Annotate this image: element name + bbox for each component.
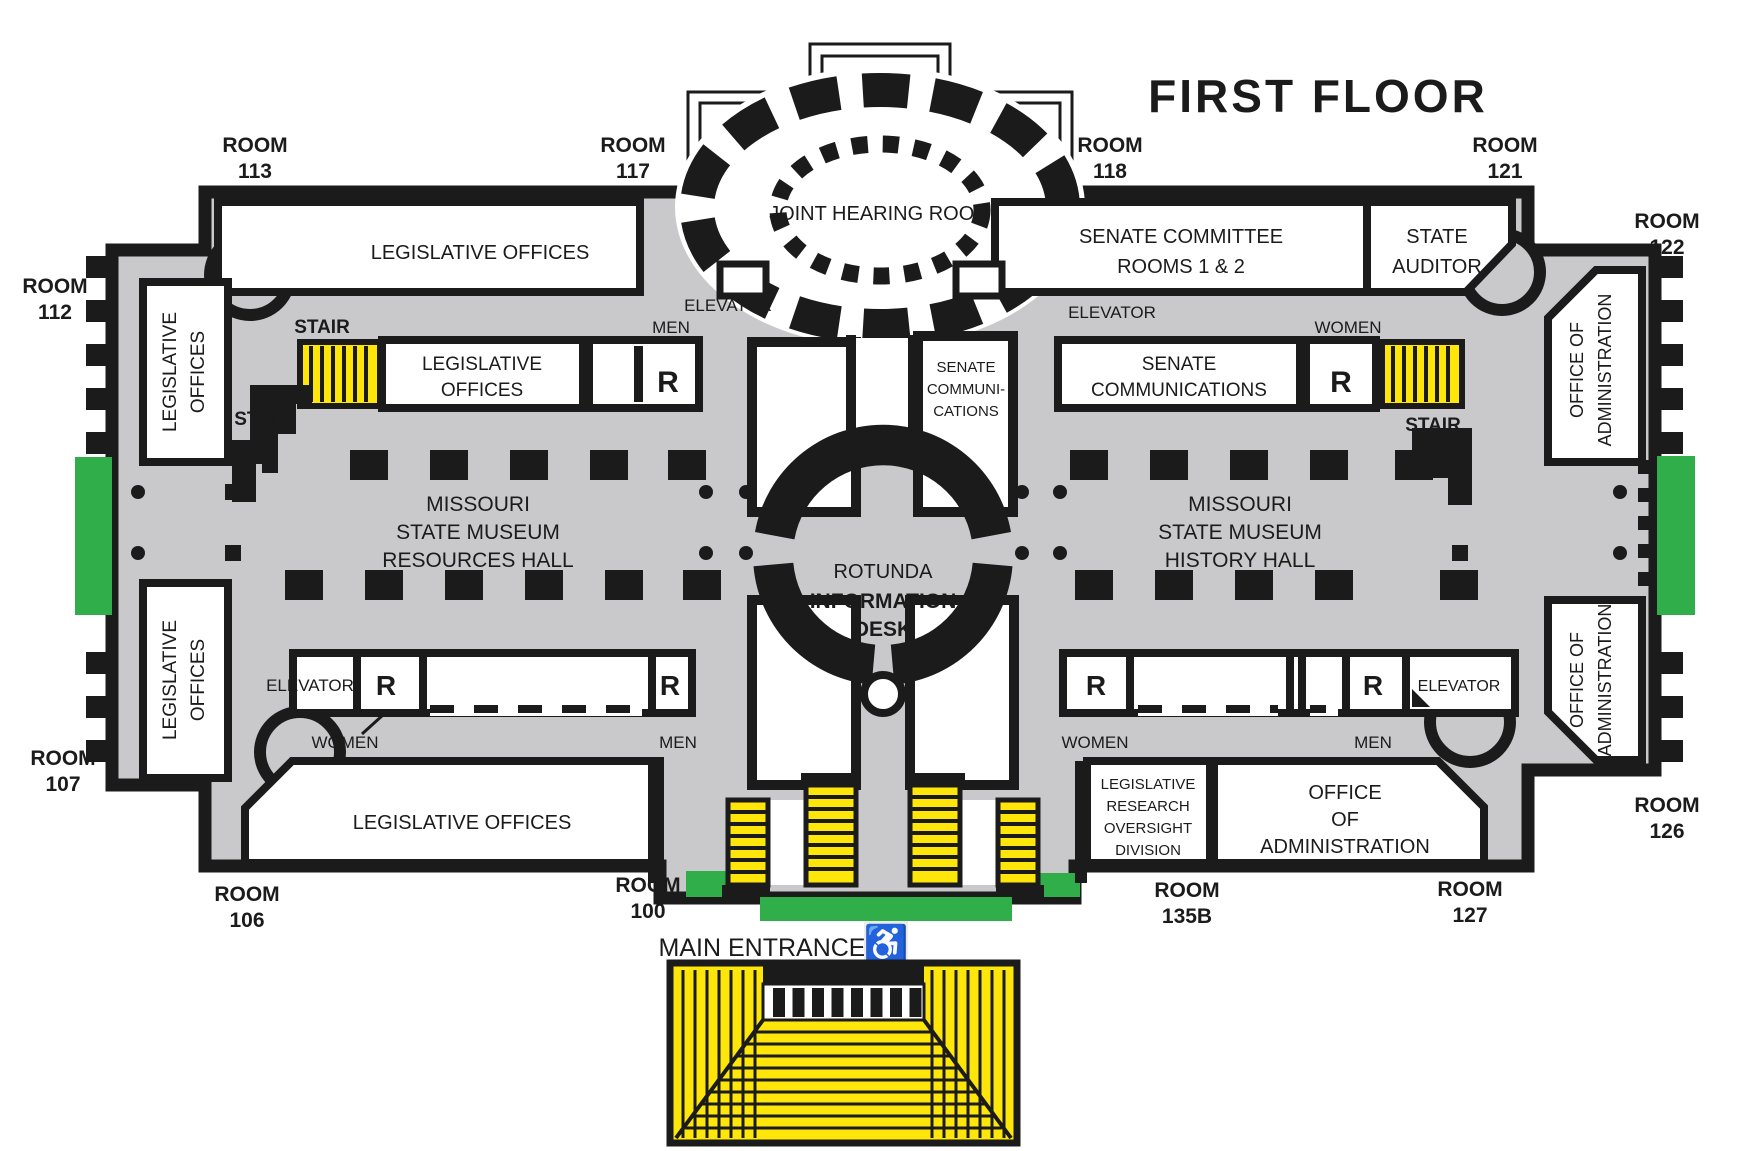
grand-stair-column-dash [851, 988, 863, 1017]
elevator-label-north-left: ELEVATOR [684, 296, 772, 315]
grand-stair-top-band [763, 966, 924, 984]
history-hall-label-1: MISSOURI [1188, 493, 1292, 516]
grand-staircase [670, 963, 1017, 1143]
west-lower-label-2: OFFICES [188, 639, 209, 721]
stair-cap-1 [801, 773, 861, 785]
row-se-divider-5 [1402, 653, 1410, 713]
elevator-label-north-right: ELEVATOR [1068, 303, 1156, 322]
row-se-divider-3 [1298, 653, 1306, 713]
wall-tooth-east [1655, 256, 1683, 278]
north-corridor-wall-right [908, 335, 918, 430]
office-admin-south-label-3: ADMINISTRATION [1260, 836, 1430, 858]
wheelchair-icon: ♿ [864, 923, 909, 964]
stair-cap-2 [905, 773, 965, 785]
senate-communications-label-1: SENATE [1142, 354, 1217, 375]
elevator-shaft-north-left [720, 264, 766, 296]
senate-communi-small-label-2: COMMUNI- [927, 381, 1005, 398]
restroom-r-sw-women: R [376, 670, 396, 701]
women-label-north: WOMEN [1314, 318, 1381, 337]
grand-stair-column-dash [871, 988, 883, 1017]
wall-tooth-east-small [1638, 488, 1654, 502]
senate-communi-small-label-3: CATIONS [933, 403, 999, 420]
men-label-north: MEN [652, 318, 690, 337]
desk-label: DESK [854, 618, 912, 641]
men-label-southeast: MEN [1354, 733, 1392, 752]
wall-tooth-west [86, 344, 114, 366]
room-100-word: ROOM [615, 874, 680, 897]
column-block [350, 450, 388, 480]
vestibule-wall-east [1075, 761, 1087, 883]
restroom-r-sw-men: R [660, 670, 680, 701]
column-block [430, 450, 468, 480]
wall-tooth-west [86, 256, 114, 278]
column-dot [131, 485, 145, 499]
column-dot [1015, 485, 1029, 499]
history-hall-label-2: STATE MUSEUM [1158, 521, 1322, 544]
state-auditor-label-1: STATE [1406, 226, 1467, 248]
wall-tooth-east [1655, 388, 1683, 410]
floor-plan-page: JOINT HEARING ROOM LEGISLATIVE OFFICES S… [0, 0, 1742, 1151]
room-112-word: ROOM [22, 275, 87, 298]
page-title: FIRST FLOOR [1148, 70, 1488, 122]
column-block [525, 570, 563, 600]
room-122-word: ROOM [1634, 210, 1699, 233]
main-entrance-label: MAIN ENTRANCE [659, 934, 866, 962]
west-entrance-green [75, 457, 112, 615]
column-dot [699, 485, 713, 499]
room-legislative-offices-west-lower [143, 583, 228, 778]
column-block [1395, 450, 1433, 480]
room-107-number: 107 [45, 773, 80, 796]
room-126-number: 126 [1649, 820, 1684, 843]
senate-committee-label-2: ROOMS 1 & 2 [1117, 256, 1245, 278]
state-auditor-label-2: AUDITOR [1392, 256, 1482, 278]
vestibule-wall-west [648, 761, 660, 883]
elevator-label-southeast: ELEVATOR [1418, 678, 1501, 695]
restroom-r-upper-right: R [1330, 366, 1352, 399]
lrod-label-2: RESEARCH [1106, 798, 1189, 815]
resources-hall-label-1: MISSOURI [426, 493, 530, 516]
column-block [590, 450, 628, 480]
column-block [1070, 450, 1108, 480]
east-lower-label-1: OFFICE OF [1567, 632, 1587, 728]
stair-landing-west [768, 800, 806, 885]
column-block [1310, 450, 1348, 480]
column-block [605, 570, 643, 600]
restroom-r-upper-left: R [657, 366, 679, 399]
main-entrance-green-bar [760, 897, 1012, 921]
stair-label-upper-left: STAIR [294, 317, 350, 338]
rotunda-label: ROTUNDA [834, 561, 934, 583]
room-126-word: ROOM [1634, 794, 1699, 817]
room-135b-word: ROOM [1154, 879, 1219, 902]
column-small [262, 457, 278, 473]
column-dot [739, 546, 753, 560]
elevator-shaft-north-right [956, 264, 1002, 296]
row-se-divider-1 [1126, 653, 1134, 713]
room-118-word: ROOM [1077, 134, 1142, 157]
resources-hall-label-3: RESOURCES HALL [382, 549, 573, 572]
room-100-number: 100 [630, 900, 665, 923]
column-block [1155, 570, 1193, 600]
history-hall-label-3: HISTORY HALL [1165, 549, 1316, 572]
east-lower-label-2: ADMINISTRATION [1595, 604, 1615, 757]
office-admin-south-label-2: OF [1331, 809, 1359, 831]
senate-communications-label-2: COMMUNICATIONS [1091, 380, 1267, 401]
row-sw-divider-2 [419, 653, 427, 713]
elevator-label-southwest: ELEVATOR [266, 676, 354, 695]
column-dot [739, 485, 753, 499]
grand-stair-column-dash [890, 988, 902, 1017]
column-block [1315, 570, 1353, 600]
row-se-divider-2 [1286, 653, 1294, 713]
room-106-word: ROOM [214, 883, 279, 906]
wall-tooth-west [86, 696, 114, 718]
room-113-word: ROOM [222, 134, 287, 157]
column-block [1075, 570, 1113, 600]
wall-tooth-east [1655, 740, 1683, 762]
joint-hearing-room-label: JOINT HEARING ROOM [769, 203, 991, 225]
column-small [225, 545, 241, 561]
wall-tooth-east [1655, 696, 1683, 718]
wall-tooth-east [1655, 300, 1683, 322]
restroom-r-se-women: R [1086, 670, 1106, 701]
room-106-number: 106 [229, 909, 264, 932]
wall-tooth-east [1655, 344, 1683, 366]
men-label-southwest: MEN [659, 733, 697, 752]
column-small [1452, 484, 1468, 500]
wall-tooth-east-small [1638, 516, 1654, 530]
room-117-word: ROOM [600, 134, 665, 157]
west-upper-label-2: OFFICES [188, 331, 209, 413]
north-corridor [856, 338, 908, 428]
wall-tooth-east [1655, 432, 1683, 454]
grand-stair-column-dash [773, 988, 785, 1017]
information-label: INFORMATION [810, 590, 957, 613]
column-block [668, 450, 706, 480]
room-122-number: 122 [1649, 236, 1684, 259]
grand-stair-column-dash [793, 988, 805, 1017]
stair-cap-3 [722, 885, 770, 897]
grand-stair-column-dash [910, 988, 922, 1017]
column-block [365, 570, 403, 600]
wall-tooth-west [86, 652, 114, 674]
row-se-divider-4 [1342, 653, 1350, 713]
restroom-men-upper [589, 340, 699, 408]
grand-stair-column-dash [812, 988, 824, 1017]
legislative-offices-south-label: LEGISLATIVE OFFICES [353, 812, 572, 834]
wall-tooth-west [86, 388, 114, 410]
column-dot [1053, 546, 1067, 560]
stair-label-west: STAIR [234, 409, 290, 430]
room-112-number: 112 [38, 301, 72, 324]
east-upper-label-1: OFFICE OF [1567, 322, 1587, 418]
lrod-label-3: OVERSIGHT [1104, 820, 1192, 837]
column-small [225, 484, 241, 500]
column-dot [1613, 485, 1627, 499]
east-entrance-green [1657, 456, 1695, 615]
column-block [285, 570, 323, 600]
east-upper-label-2: ADMINISTRATION [1595, 294, 1615, 447]
women-label-southeast: WOMEN [1061, 733, 1128, 752]
office-admin-south-label-1: OFFICE [1308, 782, 1381, 804]
room-135b-number: 135B [1162, 905, 1212, 928]
north-corridor-wall-left [846, 335, 856, 430]
wall-tooth-west [86, 300, 114, 322]
room-127-word: ROOM [1437, 878, 1502, 901]
stair-cap-4 [996, 885, 1044, 897]
resources-hall-label-2: STATE MUSEUM [396, 521, 560, 544]
lrod-label-1: LEGISLATIVE [1101, 776, 1196, 793]
column-block [1150, 450, 1188, 480]
column-dot [131, 546, 145, 560]
room-121-number: 121 [1487, 160, 1522, 183]
room-121-word: ROOM [1472, 134, 1537, 157]
row-sw-divider-1 [353, 653, 361, 713]
legislative-offices-north-label: LEGISLATIVE OFFICES [371, 242, 590, 264]
west-upper-label-1: LEGISLATIVE [160, 312, 181, 432]
legislative-offices-upper-label-2: OFFICES [441, 380, 523, 401]
room-117-number: 117 [616, 160, 650, 183]
senate-communi-small-label-1: SENATE [937, 359, 996, 376]
column-block [510, 450, 548, 480]
senate-committee-label-1: SENATE COMMITTEE [1079, 226, 1283, 248]
floor-plan-canvas: JOINT HEARING ROOM LEGISLATIVE OFFICES S… [0, 0, 1742, 1151]
wall-tooth-west [86, 432, 114, 454]
legislative-offices-upper-label-1: LEGISLATIVE [422, 354, 542, 375]
column-small [1452, 545, 1468, 561]
wall-tooth-east-small [1638, 544, 1654, 558]
room-127-number: 127 [1452, 904, 1487, 927]
column-dot [1053, 485, 1067, 499]
wall-tooth-east [1655, 652, 1683, 674]
lrod-label-4: DIVISION [1115, 842, 1181, 859]
west-lower-label-1: LEGISLATIVE [160, 620, 181, 740]
room-113-number: 113 [238, 160, 272, 183]
room-legislative-offices-west-upper [143, 282, 228, 462]
column-dot [1015, 546, 1029, 560]
column-block [683, 570, 721, 600]
restroom-divider-upper-left [634, 346, 643, 402]
stair-landing-east [960, 800, 998, 885]
information-desk-circle [864, 675, 902, 713]
restroom-r-se-men: R [1363, 670, 1383, 701]
column-dot [1613, 546, 1627, 560]
grand-stair-column-dash [832, 988, 844, 1017]
column-block [445, 570, 483, 600]
column-dot [699, 546, 713, 560]
wall-tooth-east-small [1638, 572, 1654, 586]
column-block [1440, 570, 1478, 600]
room-118-number: 118 [1093, 160, 1127, 183]
column-block [1235, 570, 1273, 600]
column-block [1230, 450, 1268, 480]
row-sw-divider-3 [648, 653, 656, 713]
women-label-southwest: WOMEN [311, 733, 378, 752]
room-107-word: ROOM [30, 747, 95, 770]
